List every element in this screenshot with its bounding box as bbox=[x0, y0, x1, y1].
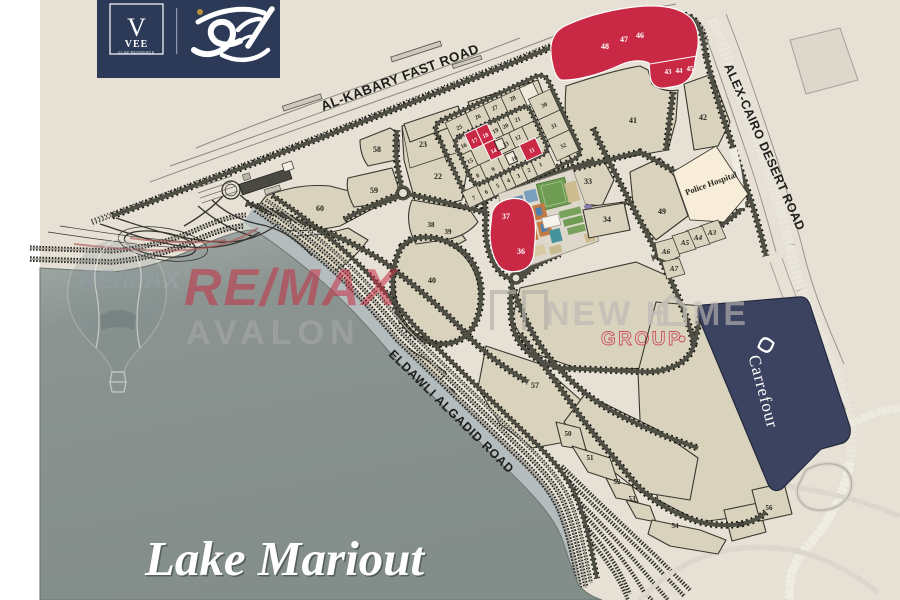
svg-text:51: 51 bbox=[587, 454, 595, 462]
svg-text:60: 60 bbox=[316, 204, 324, 213]
svg-text:46: 46 bbox=[636, 31, 644, 40]
svg-text:43: 43 bbox=[665, 68, 673, 76]
svg-text:55: 55 bbox=[738, 521, 746, 529]
svg-text:A6: A6 bbox=[661, 248, 671, 256]
svg-text:NEW H: NEW H bbox=[545, 295, 673, 333]
svg-text:41: 41 bbox=[629, 116, 637, 125]
svg-text:A3: A3 bbox=[707, 229, 717, 237]
svg-text:33: 33 bbox=[584, 177, 592, 186]
svg-text:AVALON: AVALON bbox=[186, 314, 361, 352]
svg-text:GROUP: GROUP bbox=[601, 329, 683, 350]
svg-text:VEE: VEE bbox=[125, 39, 149, 50]
svg-text:56: 56 bbox=[766, 504, 774, 512]
svg-text:45: 45 bbox=[687, 65, 695, 73]
svg-text:58: 58 bbox=[373, 145, 381, 154]
svg-text:36: 36 bbox=[517, 247, 525, 256]
svg-text:V: V bbox=[127, 13, 146, 42]
svg-text:24: 24 bbox=[434, 134, 442, 142]
svg-text:37: 37 bbox=[502, 212, 510, 221]
svg-text:52: 52 bbox=[614, 478, 622, 486]
svg-text:CLUB RESIDENCE: CLUB RESIDENCE bbox=[118, 51, 154, 55]
svg-text:40: 40 bbox=[428, 276, 436, 285]
svg-text:Lake Mariout: Lake Mariout bbox=[144, 531, 425, 586]
svg-text:A5: A5 bbox=[680, 239, 690, 247]
svg-text:42: 42 bbox=[699, 113, 707, 122]
svg-text:50: 50 bbox=[565, 430, 573, 438]
svg-text:47: 47 bbox=[620, 35, 628, 44]
svg-text:22: 22 bbox=[434, 172, 442, 181]
svg-text:38: 38 bbox=[428, 221, 436, 229]
svg-text:39: 39 bbox=[445, 228, 453, 236]
svg-text:59: 59 bbox=[370, 186, 378, 195]
svg-text:A7: A7 bbox=[669, 265, 679, 273]
svg-text:57: 57 bbox=[531, 381, 539, 390]
svg-text:54: 54 bbox=[672, 522, 680, 530]
svg-text:49: 49 bbox=[658, 207, 666, 216]
svg-text:RE/MAX: RE/MAX bbox=[184, 259, 400, 317]
svg-text:48: 48 bbox=[601, 42, 609, 51]
svg-text:34: 34 bbox=[603, 215, 611, 224]
svg-text:44: 44 bbox=[676, 67, 684, 75]
svg-text:ME: ME bbox=[692, 295, 749, 333]
svg-text:23: 23 bbox=[419, 140, 427, 149]
svg-text:53: 53 bbox=[629, 495, 637, 503]
svg-text:A4: A4 bbox=[693, 234, 703, 242]
